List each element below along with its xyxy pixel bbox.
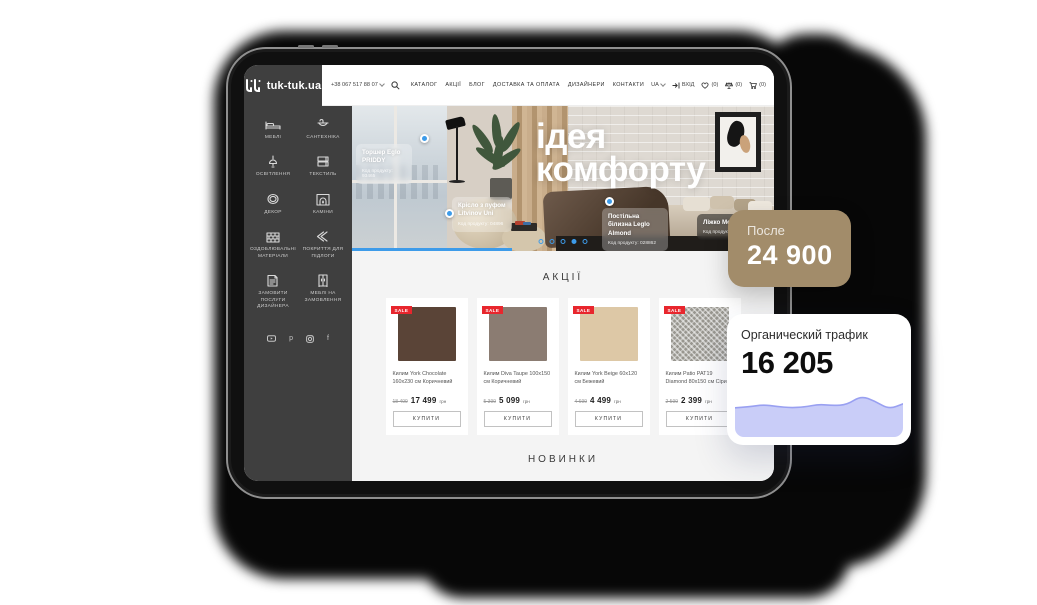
hero-title: ідея комфорту [536, 120, 705, 187]
sidebar-item-plumbing[interactable]: САНТЕХНІКА [299, 118, 347, 141]
buy-button[interactable]: КУПИТИ [484, 411, 552, 427]
carousel-dot[interactable] [561, 239, 566, 244]
price: 4 499 [590, 396, 611, 405]
after-metric-card: После 24 900 [728, 210, 851, 287]
carousel-dot-active[interactable] [572, 239, 577, 244]
product-cards-row: SALE Килим York Chocolate 160x230 см Кор… [352, 298, 774, 435]
price: 17 499 [411, 396, 437, 405]
buy-button[interactable]: КУПИТИ [393, 411, 461, 427]
hotspot-lamp[interactable]: Торшер Eglo PRIDDY Код продукту: 93465 [356, 144, 412, 184]
sale-section: АКЦІЇ SALE Килим York Chocolate 160x230 … [352, 251, 774, 435]
heart-icon [701, 82, 709, 89]
compare-scales-icon [725, 82, 733, 89]
wardrobe-icon [315, 274, 331, 287]
bricks-icon [265, 230, 281, 243]
chevron-down-icon [660, 81, 666, 87]
textile-icon [315, 155, 331, 168]
category-sidebar: МЕБЛІ САНТЕХНІКА ОСВІТЛЕННЯ ТЕКСТИЛ [244, 106, 352, 481]
nav-designers[interactable]: ДИЗАЙНЕРИ [568, 82, 605, 88]
mirror-icon [265, 193, 281, 206]
price: 2 399 [681, 396, 702, 405]
main-nav: КАТАЛОГ АКЦІЇ БЛОГ ДОСТАВКА ТА ОПЛАТА ДИ… [411, 82, 644, 88]
pendant-lamp-icon [265, 155, 281, 168]
product-name: Килим York Beige 60x120 см Бежевий [575, 370, 643, 394]
fireplace-icon [315, 193, 331, 206]
tablet-volume-button [298, 45, 314, 48]
product-image [398, 307, 456, 361]
nav-contacts[interactable]: КОНТАКТИ [613, 82, 644, 88]
hotspot-bedding[interactable]: Постільна білизна Leglo Almond Код проду… [602, 208, 668, 251]
hero-poster [715, 112, 761, 172]
nav-delivery[interactable]: ДОСТАВКА ТА ОПЛАТА [493, 82, 560, 88]
new-section-title: НОВИНКИ [352, 454, 774, 465]
product-card[interactable]: SALE Килим York Chocolate 160x230 см Кор… [386, 298, 468, 435]
logo-text: tuk-tuk.ua [267, 80, 322, 92]
tablet-screen: tuk-tuk.ua +38 067 517 88 07 КАТАЛОГ АКЦ… [244, 65, 774, 481]
sidebar-item-fireplaces[interactable]: КАМІНИ [299, 193, 347, 216]
product-name: Килим Diva Taupe 100x150 см Коричневий [484, 370, 552, 394]
wishlist-button[interactable]: (0) [701, 82, 718, 89]
after-value: 24 900 [747, 240, 851, 271]
sale-badge: SALE [391, 306, 413, 314]
product-card[interactable]: SALE Килим York Beige 60x120 см Бежевий … [568, 298, 650, 435]
page-canvas: tuk-tuk.ua +38 067 517 88 07 КАТАЛОГ АКЦ… [0, 0, 1037, 605]
phone-number[interactable]: +38 067 517 88 07 [331, 82, 384, 88]
facebook-icon[interactable]: f [327, 335, 329, 343]
carousel-dots [539, 239, 588, 244]
instagram-icon[interactable] [306, 335, 314, 343]
sale-section-title: АКЦІЇ [352, 272, 774, 283]
header-bar: +38 067 517 88 07 КАТАЛОГ АКЦІЇ БЛОГ ДОС… [322, 65, 774, 106]
sidebar-item-textile[interactable]: ТЕКСТИЛЬ [299, 155, 347, 178]
currency: грн [705, 399, 712, 404]
sidebar-item-custom-furniture[interactable]: МЕБЛІ НА ЗАМОВЛЕННЯ [299, 274, 347, 310]
hotspot-marker[interactable] [445, 209, 454, 218]
carousel-dot[interactable] [539, 239, 544, 244]
product-image [671, 307, 729, 361]
sidebar-item-decor[interactable]: ДЕКОР [249, 193, 297, 216]
tablet-volume-button [322, 45, 338, 48]
old-price: 4 699 [575, 399, 588, 405]
sidebar-item-flooring[interactable]: ПОКРИТТЯ ДЛЯ ПІДЛОГИ [299, 230, 347, 260]
traffic-title: Органический трафик [741, 328, 911, 342]
product-card[interactable]: SALE Килим Diva Taupe 100x150 см Коричне… [477, 298, 559, 435]
chevron-down-icon [379, 81, 385, 87]
login-icon [672, 82, 680, 89]
logo[interactable]: tuk-tuk.ua [244, 65, 322, 106]
organic-traffic-card: Органический трафик 16 205 [727, 314, 911, 445]
hotspot-marker[interactable] [420, 134, 429, 143]
product-image [489, 307, 547, 361]
sidebar-item-furniture[interactable]: МЕБЛІ [249, 118, 297, 141]
sale-badge: SALE [482, 306, 504, 314]
nav-catalog[interactable]: КАТАЛОГ [411, 82, 438, 88]
sale-badge: SALE [573, 306, 595, 314]
bed-icon [265, 118, 281, 131]
sale-badge: SALE [664, 306, 686, 314]
hotspot-chair[interactable]: Крісло з пуфом Litvinov Uni Код продукту… [452, 197, 512, 232]
carousel-dot[interactable] [583, 239, 588, 244]
buy-button[interactable]: КУПИТИ [575, 411, 643, 427]
header-tools: UA ВХІД (0) [651, 82, 766, 89]
login-button[interactable]: ВХІД [672, 82, 695, 89]
compare-button[interactable]: (0) [725, 82, 742, 89]
sidebar-item-finishing-materials[interactable]: ОЗДОБЛЮВАЛЬНІ МАТЕРІАЛИ [249, 230, 297, 260]
currency: грн [523, 399, 530, 404]
buy-button[interactable]: КУПИТИ [666, 411, 734, 427]
product-image [580, 307, 638, 361]
sink-icon [315, 118, 331, 131]
pinterest-icon[interactable]: p [289, 335, 293, 343]
currency: грн [614, 399, 621, 404]
tablet-frame: tuk-tuk.ua +38 067 517 88 07 КАТАЛОГ АКЦ… [226, 47, 792, 499]
cart-button[interactable]: (0) [749, 82, 766, 89]
main-content: ідея комфорту Торшер Eglo PRIDDY Код про… [352, 106, 774, 481]
search-icon[interactable] [391, 81, 400, 90]
product-name: Килим York Chocolate 160x230 см Коричнев… [393, 370, 461, 394]
cart-icon [749, 82, 757, 89]
nav-sales[interactable]: АКЦІЇ [445, 82, 461, 88]
new-section: НОВИНКИ [352, 454, 774, 465]
old-price: 18 499 [393, 399, 408, 405]
tuk-tuk-monogram-icon [245, 79, 262, 93]
price: 5 099 [499, 396, 520, 405]
product-name: Килим Patio PAT19 Diamond 80x150 см Сіри… [666, 370, 734, 394]
hero-plant [464, 106, 536, 206]
designer-icon [265, 274, 281, 287]
after-label: После [747, 223, 851, 238]
slider-progress-bar [352, 248, 512, 251]
social-links: p f [249, 335, 347, 343]
language-select[interactable]: UA [651, 82, 665, 88]
flooring-icon [315, 230, 331, 243]
traffic-value: 16 205 [741, 345, 911, 381]
hotspot-marker[interactable] [605, 197, 614, 206]
old-price: 5 399 [484, 399, 497, 405]
hero-slider[interactable]: ідея комфорту Торшер Eglo PRIDDY Код про… [352, 106, 774, 251]
carousel-dot[interactable] [550, 239, 555, 244]
youtube-icon[interactable] [267, 335, 276, 343]
currency: грн [439, 399, 446, 404]
old-price: 2 599 [666, 399, 679, 405]
traffic-sparkline-chart [735, 381, 903, 437]
nav-blog[interactable]: БЛОГ [469, 82, 485, 88]
sidebar-item-lighting[interactable]: ОСВІТЛЕННЯ [249, 155, 297, 178]
site-header: tuk-tuk.ua +38 067 517 88 07 КАТАЛОГ АКЦ… [244, 65, 774, 106]
sidebar-item-designer-services[interactable]: ЗАМОВИТИ ПОСЛУГИ ДИЗАЙНЕРА [249, 274, 297, 310]
